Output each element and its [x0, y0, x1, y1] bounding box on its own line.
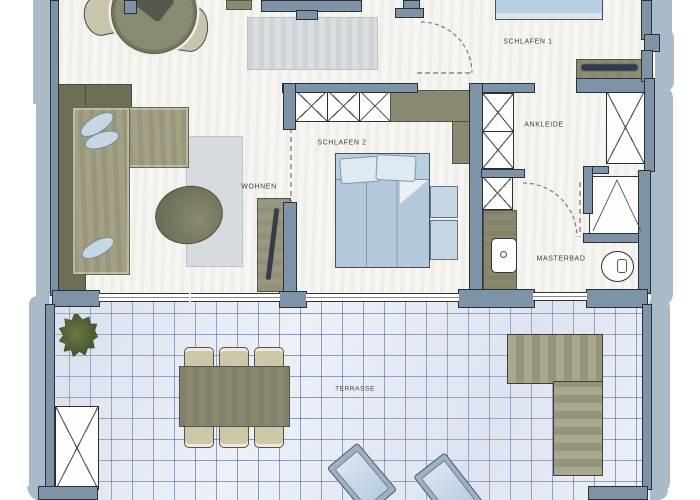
sideboard-decor [581, 64, 638, 71]
wall [283, 202, 297, 298]
wall [644, 78, 655, 172]
wall [282, 83, 418, 93]
wardrobe [482, 131, 514, 169]
window [99, 293, 189, 302]
nightstand-panel [430, 186, 458, 218]
window [191, 293, 280, 302]
headboard-unit [390, 90, 470, 122]
window [306, 293, 459, 302]
headboard-unit [452, 121, 470, 164]
bed-schlafen-1 [495, 0, 603, 20]
wall [52, 290, 100, 307]
room-label-masterbad: MASTERBAD [537, 256, 586, 263]
room-label-terrasse: TERRASSE [335, 386, 375, 393]
floor-plan: WOHNEN SCHLAFEN 1 SCHLAFEN 2 ANKLEIDE MA… [0, 0, 700, 500]
wardrobe [327, 90, 360, 122]
window [533, 292, 587, 301]
wall [586, 289, 648, 308]
wardrobe [482, 93, 514, 132]
wall [279, 291, 307, 308]
bed-pillow [375, 154, 416, 182]
room-label-schlafen-1: SCHLAFEN 1 [503, 39, 552, 46]
wall [296, 10, 318, 20]
bathroom-cabinet [482, 176, 513, 210]
wall [283, 83, 296, 130]
room-label-ankleide: ANKLEIDE [524, 122, 563, 129]
terrace-chair [254, 426, 284, 448]
wall [45, 304, 55, 500]
wall [469, 83, 483, 300]
terrace-sofa [553, 381, 603, 476]
wall [642, 304, 652, 490]
wall [124, 0, 137, 14]
wall [38, 486, 98, 500]
wardrobe [606, 91, 645, 164]
wardrobe [359, 90, 391, 122]
room-label-schlafen-2: SCHLAFEN 2 [317, 140, 366, 147]
nightstand-panel [430, 220, 458, 260]
wall [458, 289, 535, 308]
terrace-storage-box [55, 406, 99, 490]
toilet-cistern [617, 259, 627, 273]
shower [589, 176, 645, 234]
duvet [336, 179, 429, 267]
terrace-chair [219, 426, 249, 448]
wall [50, 0, 59, 296]
wall [481, 169, 525, 178]
bed-pillow [339, 156, 381, 185]
wardrobe [295, 90, 328, 122]
terrace-dining-table [179, 366, 290, 427]
wall [576, 78, 648, 93]
terrace-chair [184, 426, 214, 448]
counter [226, 0, 252, 10]
faucet-icon [500, 251, 507, 258]
hallway-rug [247, 17, 378, 70]
wall [588, 486, 648, 500]
room-label-wohnen: WOHNEN [241, 184, 277, 191]
wall [395, 8, 424, 18]
wall [583, 166, 593, 214]
wall [638, 170, 651, 294]
terrace-sofa [507, 334, 603, 384]
